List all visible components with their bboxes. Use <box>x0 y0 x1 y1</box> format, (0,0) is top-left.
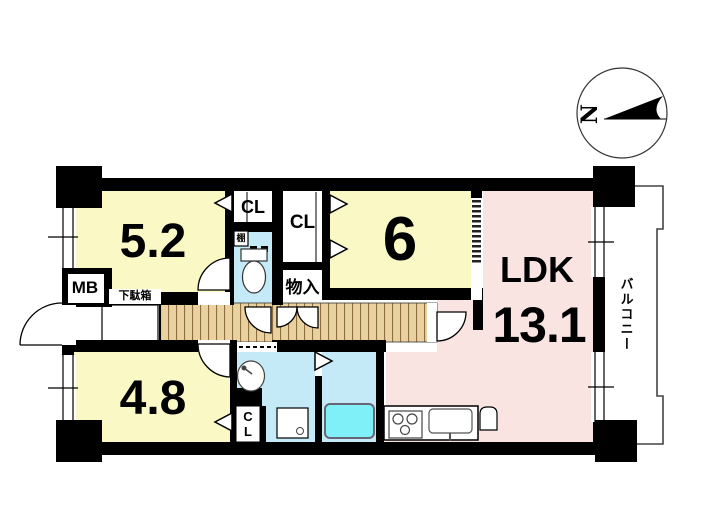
floor-plan: 5.2 CL CL 6 LDK 13.1 バルコニー MB 下駄箱 物入 棚 C… <box>0 0 705 525</box>
wall-closet2-storage-divider <box>283 262 322 270</box>
wall-top <box>56 178 635 191</box>
washer-pan <box>277 408 308 438</box>
stove-burner <box>393 414 403 424</box>
bathtub <box>325 404 374 438</box>
wall-bedroom6-bottom <box>330 288 483 300</box>
stove-burner <box>401 426 410 435</box>
folding-partition <box>471 198 482 267</box>
compass-north-label: N <box>577 101 603 127</box>
wall-toilet-right <box>272 191 283 305</box>
kitchen-sink <box>429 409 472 433</box>
closet-top-label: CL <box>234 193 272 221</box>
wall-kitchen-left <box>376 352 384 442</box>
meter-box-label: MB <box>66 272 104 302</box>
washbasin <box>238 361 265 391</box>
shoe-cabinet-label: 下駄箱 <box>109 289 161 304</box>
pillar-bottom-right <box>595 420 637 462</box>
pillar-top-right <box>593 166 635 207</box>
wall-bedroom48-top <box>62 340 198 352</box>
compass-needle <box>604 96 663 119</box>
storage-label: 物入 <box>283 271 322 303</box>
closet-bottom-label: CL <box>236 406 260 442</box>
ldk-label: LDK <box>489 248 585 292</box>
counter-end-cap <box>480 407 497 430</box>
wall-bedroom6-left <box>322 191 330 300</box>
pillar-top-left <box>56 166 102 208</box>
toilet-bowl <box>243 261 266 293</box>
bedroom-5-2-label: 5.2 <box>92 206 214 278</box>
bedroom52-doorway <box>198 292 230 305</box>
shoe-cabinet-box <box>102 305 158 342</box>
bedroom-6-label: 6 <box>352 198 448 282</box>
wall-corridor-south <box>272 340 386 352</box>
shelf-label: 棚 <box>234 231 248 246</box>
balcony-label: バルコニー <box>613 266 639 362</box>
stove-burner <box>407 414 417 424</box>
entrance-opening <box>60 305 76 345</box>
toilet-tank <box>241 249 267 261</box>
bedroom-4-8-label: 4.8 <box>92 366 214 432</box>
ldk-doorway <box>427 303 437 342</box>
wall-bottom <box>56 442 637 455</box>
closet-mid-label: CL <box>283 206 322 238</box>
entrance-door-arc <box>20 303 62 345</box>
wall-closet3-right <box>260 406 266 442</box>
ldk-size-label: 13.1 <box>480 292 598 358</box>
wall-closet1-bottom <box>225 222 274 232</box>
entrance-door <box>20 303 62 345</box>
